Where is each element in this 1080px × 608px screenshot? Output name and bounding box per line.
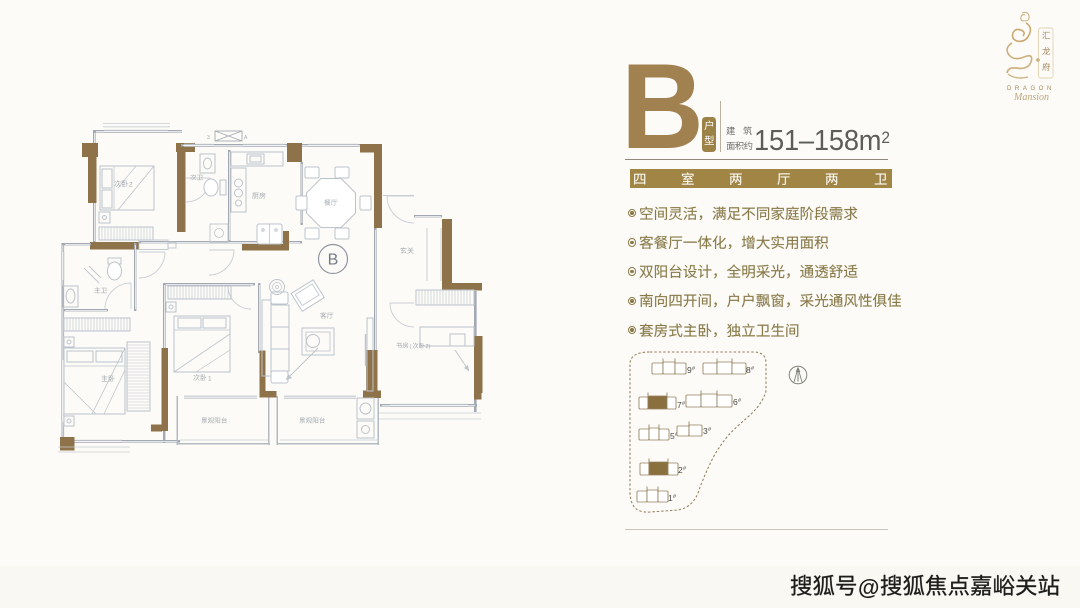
svg-text:#: # (692, 366, 696, 372)
svg-text:2): 2) (426, 344, 431, 350)
svg-text:#: # (673, 494, 677, 500)
svg-text:#: # (751, 366, 755, 372)
svg-text:B: B (328, 252, 339, 269)
svg-text:#: # (683, 466, 687, 472)
svg-text:A: A (244, 135, 248, 141)
svg-text:3: 3 (207, 135, 210, 141)
svg-text:(: ( (410, 344, 412, 350)
svg-text:#: # (738, 398, 742, 404)
svg-text:#: # (682, 401, 686, 407)
svg-text:2: 2 (129, 182, 133, 189)
svg-text:#: # (708, 427, 712, 433)
svg-text:1: 1 (208, 376, 212, 383)
